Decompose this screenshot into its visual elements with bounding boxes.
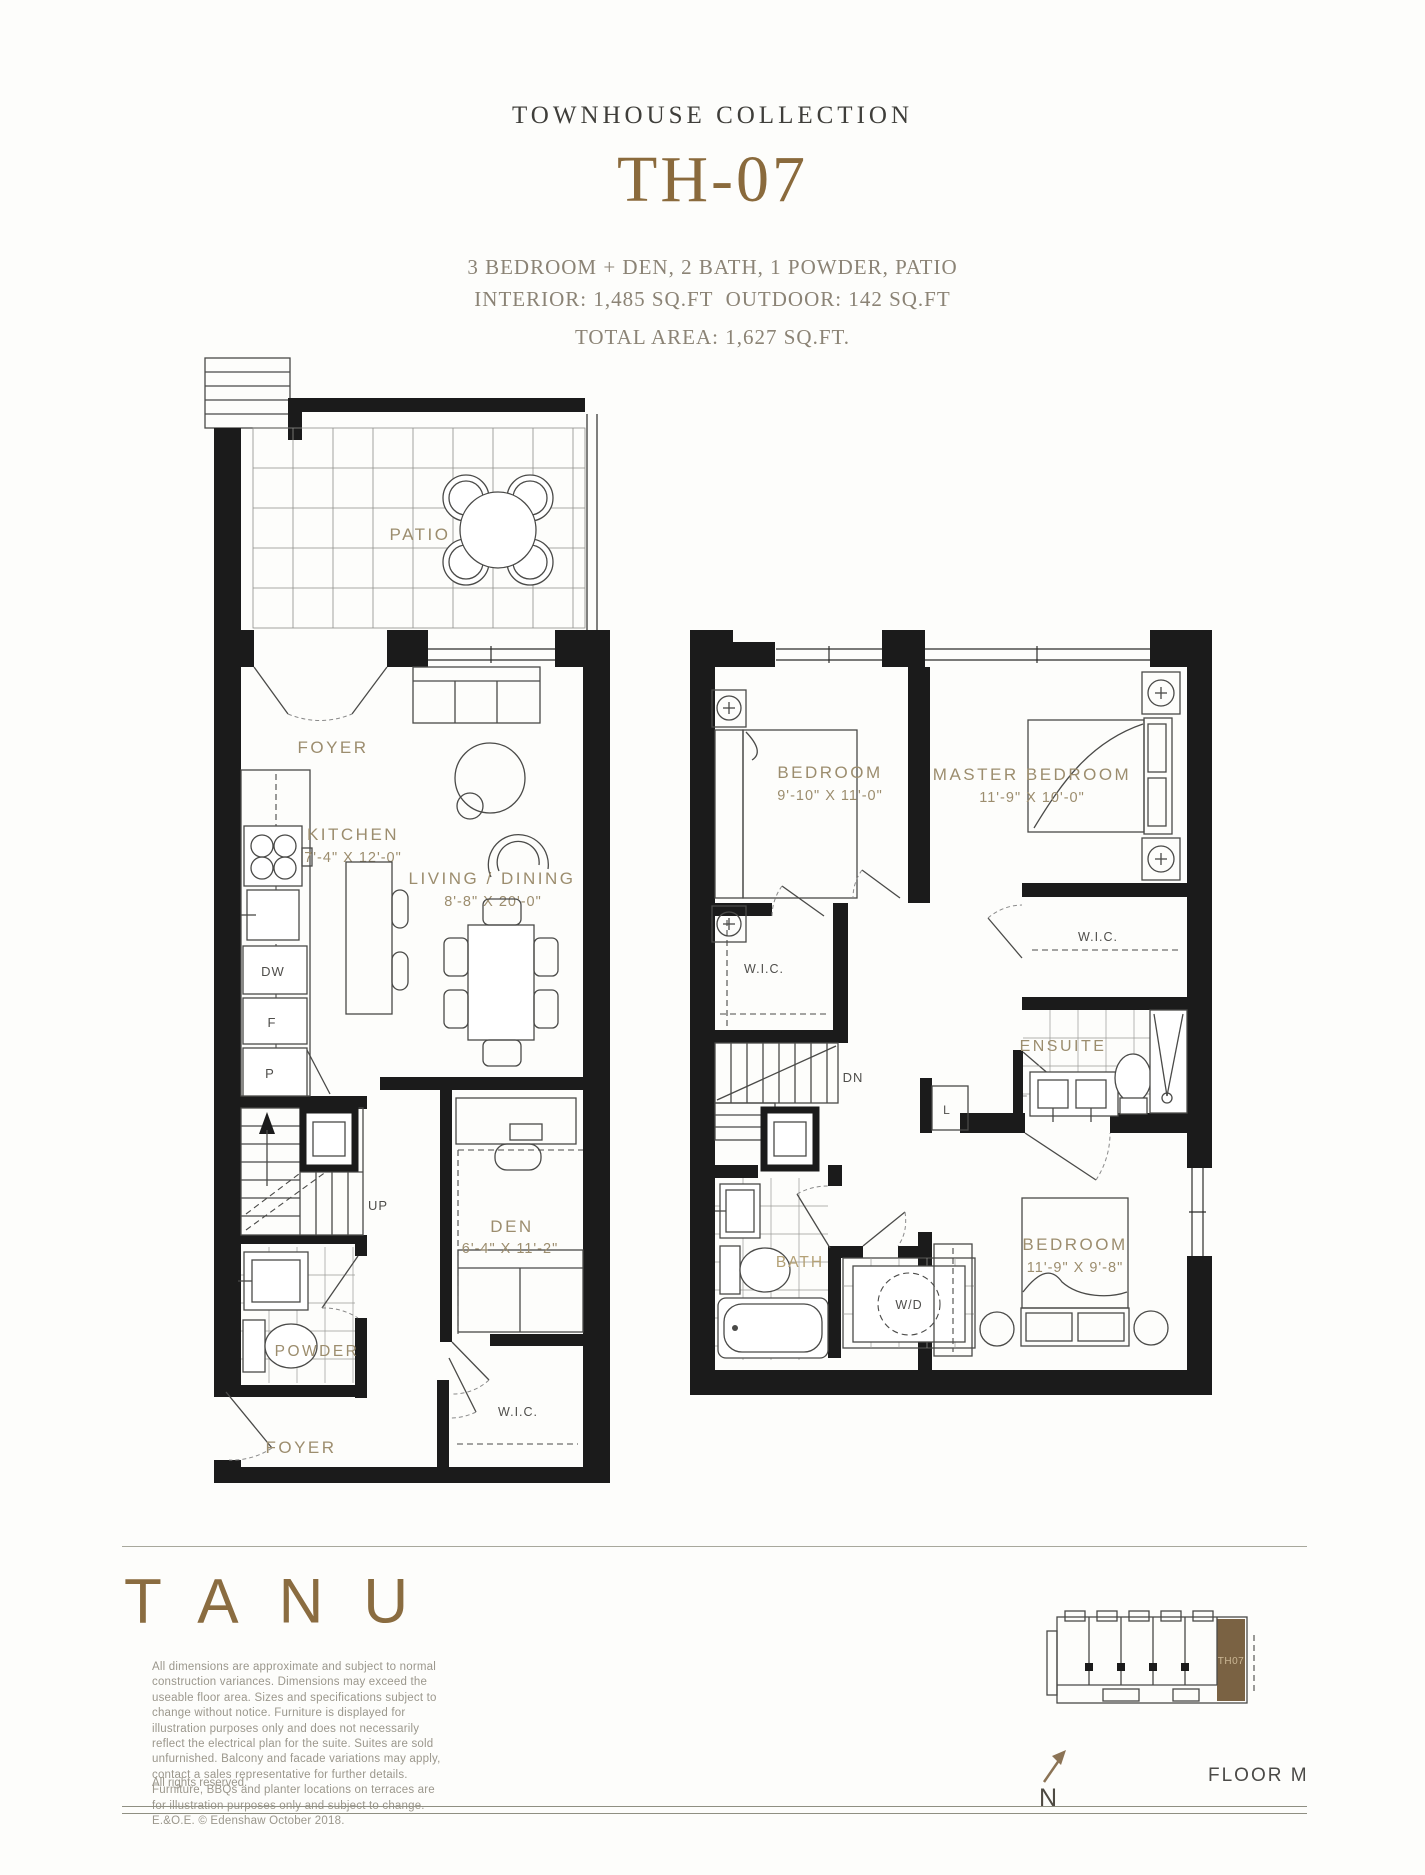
living-dining-dim: 8'-8" X 20'-0" xyxy=(444,894,542,910)
floorplan-sheet: TOWNHOUSE COLLECTION TH-07 3 BEDROOM + D… xyxy=(0,0,1425,1875)
elevator xyxy=(303,1110,355,1168)
toilet-tank xyxy=(243,1320,265,1372)
brand-logo: TANU xyxy=(124,1565,448,1637)
elevator xyxy=(764,1110,816,1168)
den-area: DEN 6'-4" X 11'-2" xyxy=(452,1150,583,1394)
master-bedroom-label: MASTER BEDROOM xyxy=(933,765,1131,784)
sofa xyxy=(413,667,540,723)
dining-set xyxy=(444,899,558,1066)
lower-foyer-label: FOYER xyxy=(265,1438,336,1457)
wic-right-area: W.I.C. xyxy=(1032,930,1180,950)
living-dining-label: LIVING / DINING xyxy=(409,869,576,888)
ensuite-area: ENSUITE xyxy=(1020,1010,1187,1122)
footer-bottom-rule-2 xyxy=(122,1813,1307,1814)
living-dining-area: LIVING / DINING 8'-8" X 20'-0" xyxy=(409,667,576,1170)
bedroom2-label: BEDROOM xyxy=(1022,1235,1127,1254)
bedroom1-label: BEDROOM xyxy=(777,763,882,782)
wic-right-label: W.I.C. xyxy=(1078,930,1118,944)
floor1-wic-label: W.I.C. xyxy=(498,1405,538,1419)
laundry-area: W/D xyxy=(843,1212,975,1348)
pantry xyxy=(243,1048,307,1096)
upper-foyer: FOYER xyxy=(254,667,387,757)
toilet-tank xyxy=(720,1246,740,1294)
kitchen-label: KITCHEN xyxy=(307,825,399,844)
north-arrow-head xyxy=(1052,1750,1066,1765)
master-bedroom-dim: 11'-9" X 10'-0" xyxy=(979,790,1085,806)
keyplan-unit-label: TH07 xyxy=(1218,1656,1244,1667)
kitchen-dim: 7'-4" X 12'-0" xyxy=(304,850,402,866)
north-label: N xyxy=(1039,1784,1057,1812)
patio-wall xyxy=(288,398,585,412)
master-bedroom-area: MASTER BEDROOM 11'-9" X 10'-0" xyxy=(933,672,1180,880)
kitchen-island xyxy=(346,862,392,1014)
patio-area: PATIO xyxy=(205,358,597,630)
up-label: UP xyxy=(368,1198,388,1213)
bed-headboard xyxy=(715,730,743,898)
disclaimer-text: All dimensions are approximate and subje… xyxy=(152,1660,444,1829)
ensuite-vanity xyxy=(1030,1072,1118,1116)
bedroom2-area: BEDROOM 11'-9" X 9'-8" xyxy=(934,1133,1168,1356)
floor1-wic: W.I.C. xyxy=(449,1358,578,1444)
patio-table-set xyxy=(443,475,553,585)
patio-label: PATIO xyxy=(390,525,451,544)
floor-label: FLOOR M xyxy=(1208,1765,1309,1787)
wic-left-label: W.I.C. xyxy=(744,962,784,976)
desk xyxy=(456,1098,576,1170)
floor2-plan: BEDROOM 9'-10" X 11'-0" MASTER BEDROOM 1… xyxy=(690,630,1212,1395)
dn-label: DN xyxy=(843,1070,864,1085)
north-arrow: N xyxy=(1039,1750,1066,1812)
upper-foyer-label: FOYER xyxy=(297,738,368,757)
bed-bench xyxy=(1021,1308,1129,1346)
round-rug xyxy=(455,743,525,813)
fridge-label: F xyxy=(268,1015,277,1030)
hall-doors xyxy=(853,870,1058,1096)
key-plan: TH07 xyxy=(1047,1611,1254,1703)
bedroom2-dim: 11'-9" X 9'-8" xyxy=(1027,1260,1123,1276)
ensuite-label: ENSUITE xyxy=(1020,1038,1107,1055)
powder-sink xyxy=(244,1252,308,1310)
bedroom1-dim: 9'-10" X 11'-0" xyxy=(777,788,883,804)
stairs-up: UP xyxy=(241,1108,388,1235)
pantry-label: P xyxy=(265,1066,275,1081)
bath-area: BATH xyxy=(715,1178,830,1360)
bed xyxy=(743,730,857,898)
ensuite-toilet xyxy=(1115,1054,1151,1102)
stairs-down: DN xyxy=(715,1043,863,1168)
wd-label: W/D xyxy=(895,1298,922,1312)
powder-room: POWDER xyxy=(238,1247,359,1383)
dishwasher-label: DW xyxy=(261,964,285,979)
lower-foyer: FOYER xyxy=(226,1392,337,1460)
round-table xyxy=(1134,1311,1168,1345)
footer-top-rule xyxy=(122,1546,1307,1547)
cooktop xyxy=(244,826,302,886)
floor1-plan: PATIO xyxy=(205,358,610,1483)
footer-bottom-rule-1 xyxy=(122,1806,1307,1807)
linen-label: L xyxy=(943,1103,951,1117)
bath-label: BATH xyxy=(776,1254,824,1271)
round-table xyxy=(980,1312,1014,1346)
rights-text: All rights reserved. xyxy=(152,1777,247,1789)
powder-label: POWDER xyxy=(275,1343,360,1360)
den-label: DEN xyxy=(490,1217,533,1236)
den-dim: 6'-4" X 11'-2" xyxy=(462,1241,558,1257)
kitchen-area: DW F P KITCHEN 7'-4" X 12'-0" xyxy=(241,770,408,1096)
